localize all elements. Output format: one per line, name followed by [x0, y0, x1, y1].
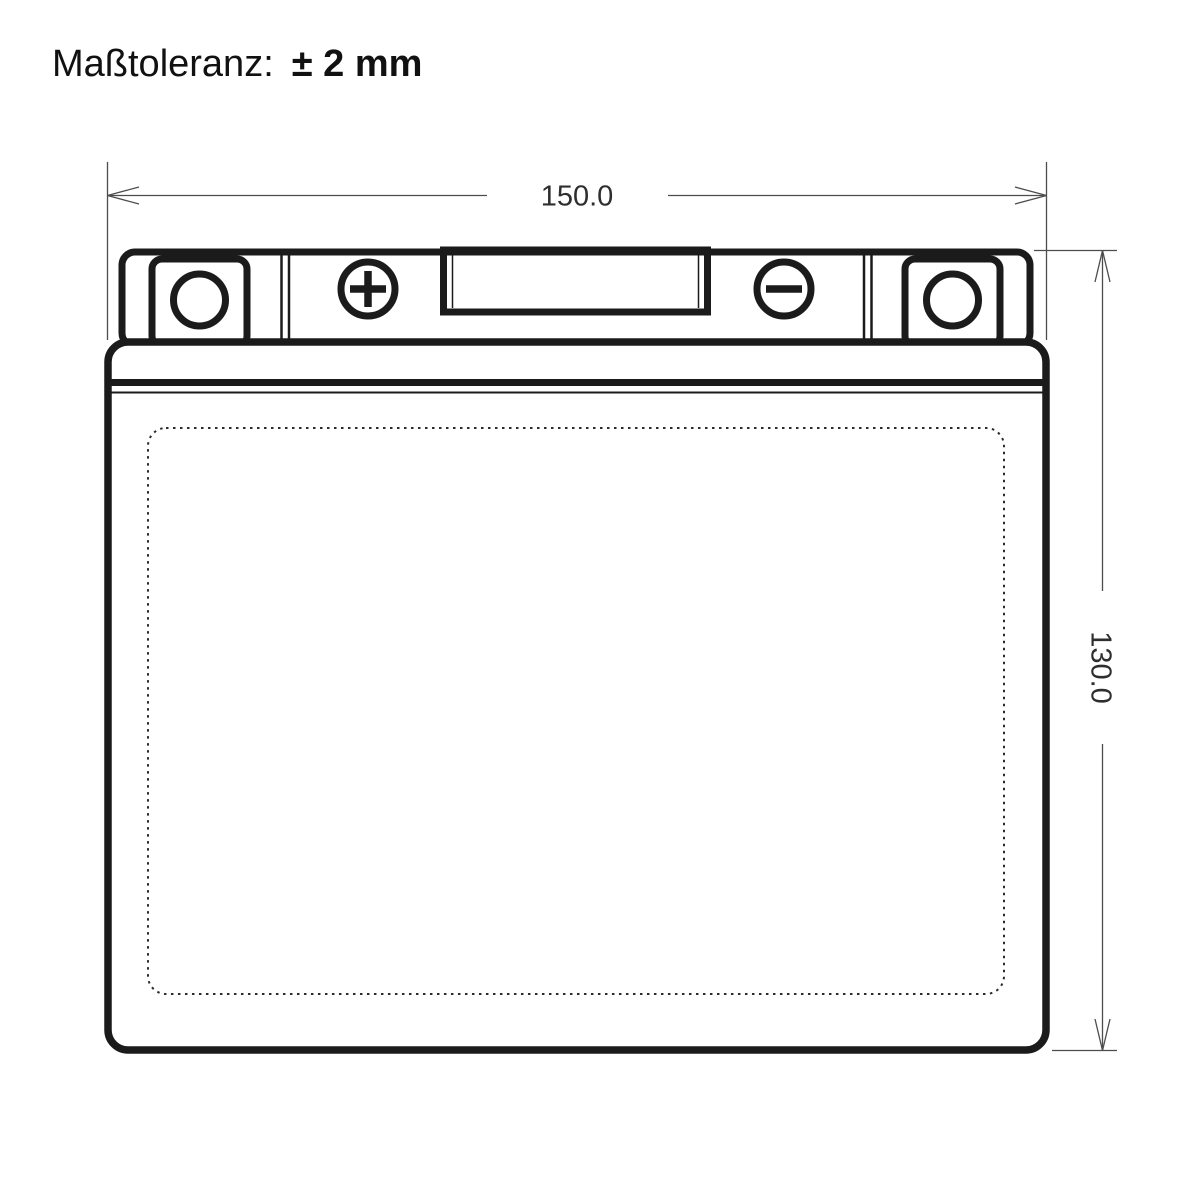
battery-dimension-drawing: 150.0 130.0 [0, 0, 1200, 1200]
width-dimension-value: 150.0 [541, 181, 614, 213]
page: Maßtoleranz:± 2 mm 150.0 [0, 0, 1200, 1200]
battery-body [108, 342, 1046, 1050]
terminal-strip [122, 252, 1030, 346]
height-dimension-value: 130.0 [1085, 631, 1117, 704]
battery-outline [108, 250, 1046, 1050]
